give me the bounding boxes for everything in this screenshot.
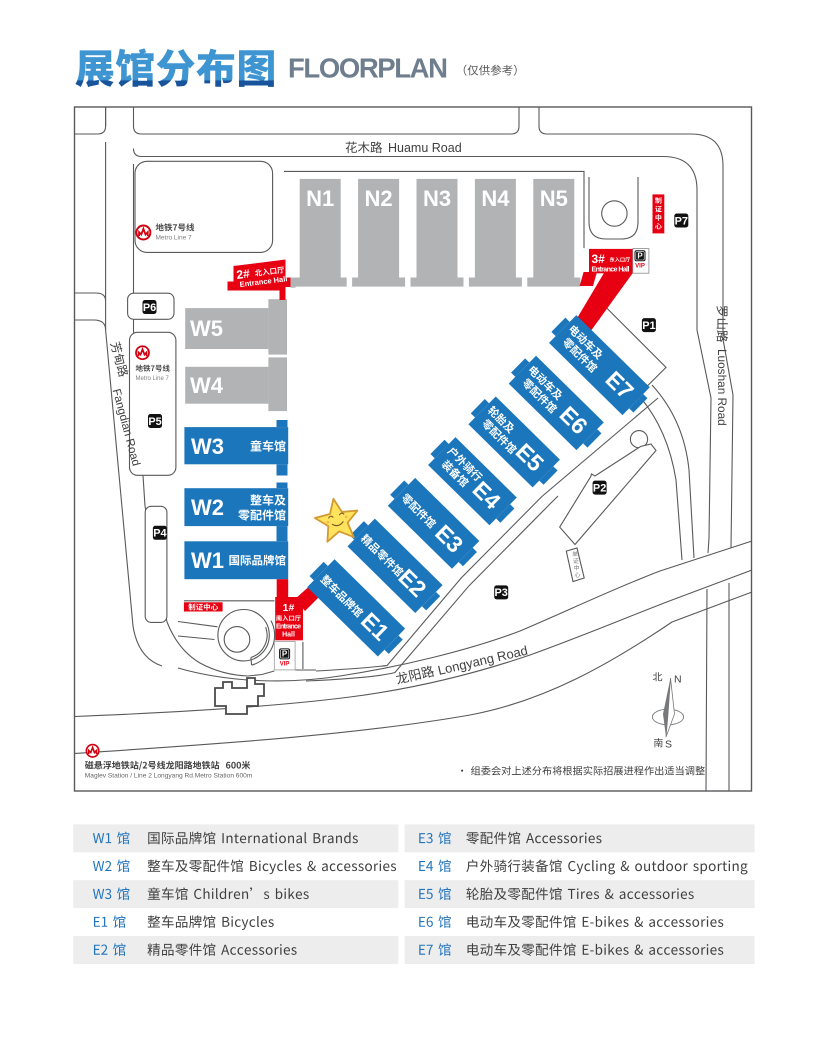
- svg-text:Huamu Road: Huamu Road: [388, 141, 462, 155]
- svg-text:Metro Line 7: Metro Line 7: [156, 235, 193, 242]
- svg-text:P: P: [637, 251, 643, 260]
- svg-text:1#: 1#: [283, 602, 295, 614]
- svg-text:W4: W4: [190, 373, 224, 398]
- svg-text:W2: W2: [191, 495, 224, 520]
- svg-text:W3: W3: [191, 434, 224, 459]
- svg-text:Maglev Station / Line 2 Longya: Maglev Station / Line 2 Longyang Rd.Metr…: [85, 773, 253, 780]
- svg-text:N5: N5: [540, 186, 568, 211]
- svg-text:Luoshan Road: Luoshan Road: [715, 349, 729, 426]
- svg-text:VIP: VIP: [635, 264, 645, 270]
- svg-text:P3: P3: [495, 587, 508, 599]
- svg-text:FLOORPLAN: FLOORPLAN: [288, 53, 448, 84]
- svg-text:P5: P5: [148, 416, 161, 428]
- svg-text:N: N: [674, 674, 682, 686]
- svg-text:P6: P6: [143, 302, 156, 314]
- svg-text:P2: P2: [593, 482, 606, 494]
- svg-text:Hall: Hall: [282, 632, 295, 639]
- svg-text:3#: 3#: [592, 252, 606, 266]
- svg-text:W1: W1: [191, 548, 224, 573]
- svg-text:VIP: VIP: [280, 662, 290, 668]
- svg-text:P4: P4: [153, 528, 166, 540]
- svg-text:Entrance: Entrance: [276, 624, 301, 631]
- svg-text:N3: N3: [423, 186, 451, 211]
- svg-text:W5: W5: [190, 316, 223, 341]
- svg-text:N4: N4: [481, 186, 510, 211]
- svg-text:P: P: [282, 650, 288, 659]
- svg-text:P1: P1: [642, 320, 655, 332]
- svg-text:N1: N1: [306, 186, 334, 211]
- svg-text:P7: P7: [675, 215, 688, 227]
- svg-text:Metro Line 7: Metro Line 7: [136, 376, 170, 382]
- svg-text:Entrance Hall: Entrance Hall: [592, 267, 630, 274]
- svg-text:S: S: [665, 739, 672, 751]
- svg-text:Longyang Road: Longyang Road: [436, 643, 529, 678]
- svg-text:N2: N2: [365, 186, 393, 211]
